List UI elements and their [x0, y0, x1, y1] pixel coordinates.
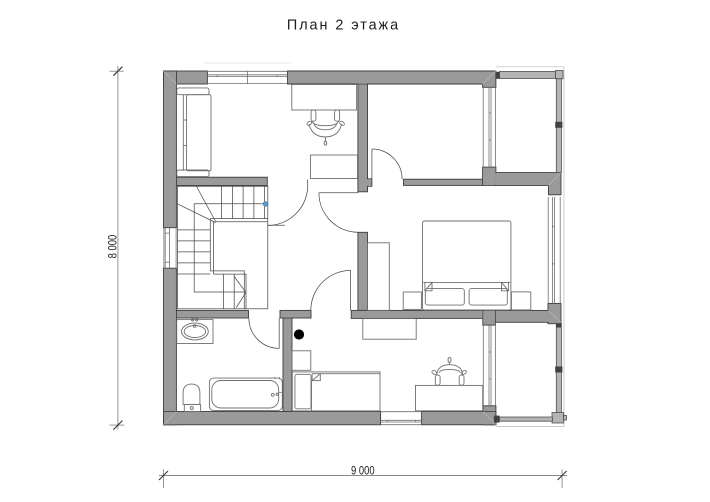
- svg-text:8 000: 8 000: [107, 235, 120, 259]
- svg-text:План 2 этажа: План 2 этажа: [287, 17, 400, 33]
- svg-text:9 000: 9 000: [351, 465, 375, 478]
